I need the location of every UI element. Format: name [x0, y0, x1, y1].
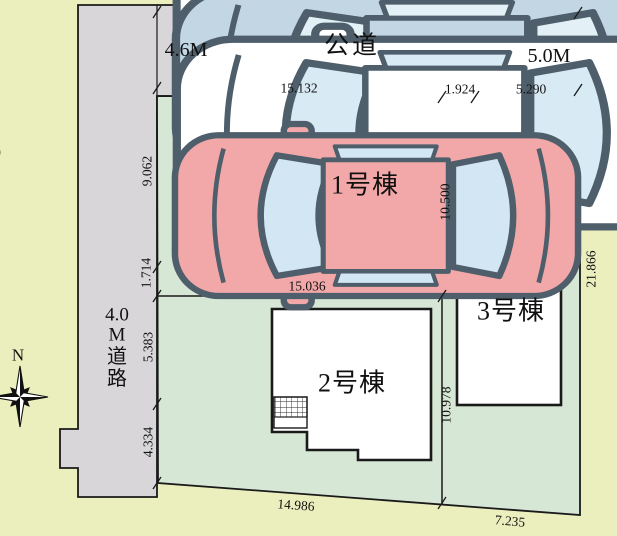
- public-road-label: 公道: [324, 32, 380, 60]
- dim-lot2-west-b: 4.334: [141, 427, 156, 458]
- west-road-char-1: 4.0: [105, 305, 129, 326]
- edge-text-fragment: ): [0, 144, 1, 160]
- site-plan-page: N 公道 4.6M 5.0M 4.0 M 道 路 1号棟 2号棟 3号棟 15.…: [0, 0, 617, 536]
- west-road-char-2: M: [109, 325, 126, 346]
- west-road-char-4: 路: [107, 367, 127, 390]
- road-width-left-label: 4.6M: [165, 39, 208, 61]
- dim-lot1-east: 10.500: [438, 183, 453, 220]
- dim-lot2-west-a: 5.383: [141, 332, 156, 363]
- building-2-label: 2号棟: [318, 369, 386, 398]
- west-road-label: 4.0 M 道 路: [105, 305, 129, 391]
- dim-frontage-seg-a: 1.924: [445, 82, 476, 97]
- dim-lot2-south: 14.986: [277, 496, 315, 514]
- dim-lot3-east: 21.866: [584, 250, 599, 287]
- dim-lot1-west-a: 9.062: [140, 156, 155, 186]
- dim-frontage-seg-b: 5.290: [516, 82, 547, 97]
- west-road-char-3: 道: [107, 345, 127, 368]
- car-pink-lot2: [175, 124, 578, 307]
- dim-lot1-south: 15.036: [288, 279, 325, 294]
- dim-lot3-south: 7.235: [494, 512, 526, 530]
- dim-road-frontage-lot12: 15.132: [280, 81, 317, 96]
- dim-lot2-east: 10.978: [439, 386, 454, 423]
- building-1-label: 1号棟: [331, 171, 399, 200]
- road-width-right-label: 5.0M: [528, 45, 571, 67]
- site-plan-drawing: N 公道 4.6M 5.0M 4.0 M 道 路 1号棟 2号棟 3号棟 15.…: [0, 0, 617, 536]
- porch-building-2: [274, 397, 307, 428]
- building-3-label: 3号棟: [477, 297, 545, 326]
- dim-lot1-west-b: 1.714: [139, 258, 154, 289]
- compass-north-label: N: [12, 346, 24, 365]
